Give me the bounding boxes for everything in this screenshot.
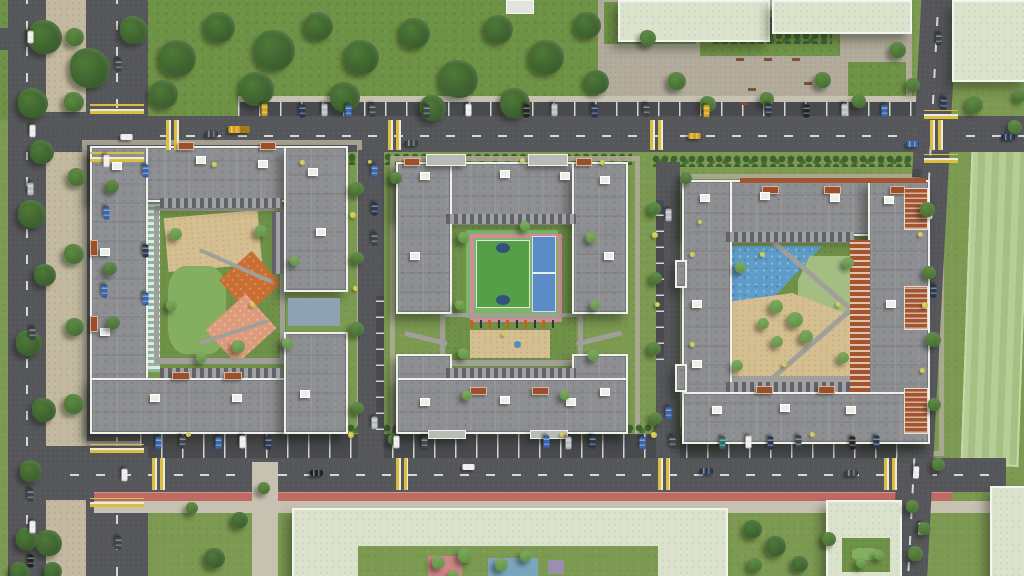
roof-bulkhead-11 <box>500 170 510 178</box>
yellow-bush-126 <box>690 252 695 257</box>
bench-2 <box>792 58 800 61</box>
car-78 <box>913 466 920 479</box>
lb-paved-terrace <box>288 298 340 326</box>
tree-59 <box>928 398 941 411</box>
mb-path-mid <box>444 313 578 317</box>
tree-5 <box>205 12 235 42</box>
mb-roof-west <box>396 162 452 314</box>
mb-fitness-strip <box>470 320 556 328</box>
tree-76 <box>588 350 599 361</box>
yellow-bush-123 <box>186 432 191 437</box>
car-66 <box>666 407 672 420</box>
tree-93 <box>822 532 836 546</box>
mb-blue-court-line <box>532 272 556 274</box>
rb-facade-north <box>726 232 854 242</box>
tree-27 <box>906 78 920 92</box>
car-34 <box>670 436 676 449</box>
crosswalk-6 <box>90 444 144 453</box>
building-north-b <box>772 0 912 34</box>
crosswalk-5 <box>90 152 144 162</box>
car-54 <box>102 285 108 298</box>
car-1 <box>300 105 306 118</box>
crosswalk-3 <box>930 120 946 150</box>
car-46 <box>30 125 36 138</box>
tree-87 <box>838 352 849 363</box>
roof-bulkhead-6 <box>150 394 160 402</box>
car-45 <box>28 31 34 44</box>
roof-bulkhead-14 <box>410 252 420 260</box>
bench-4 <box>804 82 812 85</box>
roof-bulkhead-9 <box>316 228 326 236</box>
tree-30 <box>68 168 86 186</box>
yellow-bush-131 <box>502 332 506 336</box>
car-11 <box>704 105 710 118</box>
car-25 <box>216 437 222 450</box>
mb-bump-south-a <box>428 430 466 439</box>
roof-bulkhead-4 <box>100 248 110 256</box>
crosswalk-8 <box>152 458 165 490</box>
car-53 <box>104 207 110 220</box>
tree-11 <box>485 15 513 43</box>
tree-4 <box>160 40 196 76</box>
building-corner-ne <box>952 0 1024 82</box>
car-20 <box>906 141 919 147</box>
tree-3 <box>120 16 148 44</box>
car-63 <box>372 233 378 246</box>
tree-39 <box>20 460 42 482</box>
car-2 <box>322 104 328 117</box>
entrance-canopy-3 <box>90 316 98 332</box>
car-4 <box>370 104 376 117</box>
entrance-canopy-1 <box>224 372 242 380</box>
roof-bulkhead-21 <box>760 192 770 200</box>
yellow-bush-122 <box>836 302 841 307</box>
tree-73 <box>455 300 465 310</box>
building-north-small <box>506 0 534 14</box>
roof-bulkhead-17 <box>500 396 510 404</box>
car-35 <box>720 437 726 450</box>
yellow-bush-124 <box>560 432 565 437</box>
entrance-canopy-14 <box>818 386 835 394</box>
tree-90 <box>766 536 786 556</box>
entrance-canopy-13 <box>756 386 773 394</box>
tree-20 <box>640 30 656 46</box>
tree-38 <box>32 398 56 422</box>
car-9 <box>592 105 598 118</box>
tree-75 <box>458 348 469 359</box>
tree-51 <box>648 202 661 215</box>
tree-13 <box>575 12 601 38</box>
car-31 <box>566 437 572 450</box>
tree-62 <box>1008 120 1022 134</box>
tree-71 <box>458 232 469 243</box>
roof-bulkhead-13 <box>600 176 610 184</box>
crosswalk-11 <box>884 458 897 490</box>
roof-bulkhead-16 <box>420 398 430 406</box>
roof-bulkhead-26 <box>712 406 722 414</box>
tree-36 <box>34 264 56 286</box>
tree-88 <box>732 360 743 371</box>
tree-33 <box>64 394 84 414</box>
hedge-top-east <box>652 155 926 167</box>
tree-103 <box>432 556 445 569</box>
mb-bump-north-a <box>426 154 466 166</box>
roof-bulkhead-2 <box>258 160 268 168</box>
roof-bulkhead-27 <box>780 404 790 412</box>
yellow-bush-118 <box>920 368 925 373</box>
car-7 <box>524 105 530 118</box>
car-47 <box>28 183 34 196</box>
yellow-bush-116 <box>918 232 923 237</box>
tree-97 <box>44 562 62 576</box>
yellow-bush-115 <box>651 432 657 438</box>
tree-56 <box>920 202 935 217</box>
car-12 <box>766 104 772 117</box>
roof-bulkhead-0 <box>112 162 122 170</box>
entrance-canopy-0 <box>172 372 190 380</box>
tree-52 <box>650 272 662 284</box>
car-19 <box>688 133 701 139</box>
tree-68 <box>282 338 293 349</box>
tree-21 <box>668 72 686 90</box>
yellow-bush-134 <box>368 160 372 164</box>
tree-108 <box>856 558 866 568</box>
tree-42 <box>106 180 119 193</box>
car-41 <box>310 470 323 476</box>
tree-91 <box>792 556 808 572</box>
entrance-canopy-4 <box>178 142 194 150</box>
tree-40 <box>36 530 62 556</box>
car-49 <box>28 489 34 502</box>
mb-roof-south <box>396 378 628 434</box>
tree-43 <box>104 262 117 275</box>
tree-65 <box>255 225 267 237</box>
car-40 <box>874 436 880 449</box>
tree-104 <box>458 548 473 563</box>
tree-63 <box>1014 90 1024 102</box>
tree-70 <box>290 256 300 266</box>
tree-24 <box>815 72 831 88</box>
entrance-canopy-2 <box>90 240 98 256</box>
tree-17 <box>240 72 274 106</box>
car-57 <box>104 155 110 168</box>
tree-85 <box>772 336 783 347</box>
bus-0 <box>228 126 250 133</box>
car-48 <box>30 327 36 340</box>
car-52 <box>116 59 122 72</box>
tree-45 <box>350 182 364 196</box>
rb-terra-section-b <box>904 286 928 330</box>
entrance-canopy-12 <box>890 186 905 194</box>
tree-86 <box>758 318 769 329</box>
car-26 <box>240 436 246 449</box>
yellow-bush-132 <box>782 362 787 367</box>
yellow-bush-128 <box>300 160 305 165</box>
mb-facade-south <box>446 368 576 378</box>
yellow-bush-127 <box>690 342 695 347</box>
roof-bulkhead-22 <box>830 194 840 202</box>
tree-94 <box>205 548 225 568</box>
yellow-bush-130 <box>250 302 255 307</box>
tree-31 <box>64 244 84 264</box>
mb-key-south <box>496 295 510 305</box>
lane-dash-top <box>160 135 1024 137</box>
tree-7 <box>305 12 333 40</box>
tree-80 <box>735 262 746 273</box>
car-30 <box>544 436 550 449</box>
tree-98 <box>258 482 270 494</box>
yellow-bush-125 <box>810 432 815 437</box>
tree-105 <box>495 558 508 571</box>
mb-sand-playground <box>470 330 550 358</box>
tree-34 <box>30 140 54 164</box>
tree-109 <box>874 550 884 560</box>
yellow-bush-121 <box>760 252 765 257</box>
car-59 <box>143 245 149 258</box>
car-73 <box>940 97 947 110</box>
car-56 <box>116 537 122 550</box>
tree-55 <box>680 172 692 184</box>
car-21 <box>1002 134 1015 140</box>
rb-terra-parapet <box>740 178 926 183</box>
tree-79 <box>560 390 570 400</box>
driveway-1-stalls <box>376 296 384 430</box>
bench-0 <box>736 58 744 61</box>
footpath-southwest <box>252 462 278 576</box>
tree-9 <box>400 18 430 48</box>
car-36 <box>746 436 752 449</box>
tree-12 <box>530 40 564 74</box>
roof-bulkhead-8 <box>300 390 310 398</box>
roof-bulkhead-20 <box>700 194 710 202</box>
car-75 <box>930 284 937 297</box>
mb-bump-north-b <box>528 154 568 166</box>
yellow-bush-110 <box>350 212 356 218</box>
tree-78 <box>462 390 472 400</box>
mb-key-north <box>496 243 510 253</box>
crosswalk-1 <box>388 120 401 150</box>
roof-bulkhead-12 <box>560 172 570 180</box>
tree-48 <box>352 402 364 414</box>
yellow-bush-112 <box>348 432 354 438</box>
tree-74 <box>590 300 600 310</box>
car-44 <box>845 470 858 476</box>
entrance-canopy-11 <box>824 186 841 194</box>
crosswalk-4 <box>90 104 144 114</box>
rb-bump-west-a <box>675 260 687 288</box>
car-32 <box>590 436 596 449</box>
car-50 <box>30 521 36 534</box>
tree-26 <box>890 42 906 58</box>
striped-field-east <box>960 147 1024 467</box>
tree-77 <box>520 221 530 231</box>
tree-19 <box>585 70 609 94</box>
yellow-bush-117 <box>922 302 928 308</box>
tree-47 <box>350 322 364 336</box>
roof-bulkhead-10 <box>420 172 430 180</box>
car-62 <box>372 203 378 216</box>
tree-54 <box>650 412 662 424</box>
lb-roof-east-lower <box>284 332 348 434</box>
tree-61 <box>966 96 983 113</box>
tree-44 <box>107 316 120 329</box>
car-8 <box>552 104 558 117</box>
roof-bulkhead-1 <box>196 156 206 164</box>
yellow-bush-133 <box>698 220 702 224</box>
tree-84 <box>800 330 813 343</box>
car-16 <box>120 134 133 140</box>
tree-102 <box>918 522 931 535</box>
tree-57 <box>923 266 936 279</box>
tree-53 <box>648 342 661 355</box>
rb-terra-section-c <box>904 388 928 434</box>
car-29 <box>422 437 428 450</box>
car-72 <box>935 32 942 45</box>
crosswalk-9 <box>396 458 408 490</box>
yellow-bush-111 <box>353 286 358 291</box>
car-14 <box>842 104 848 117</box>
car-18 <box>405 140 418 146</box>
car-51 <box>28 555 34 568</box>
car-0 <box>262 104 268 117</box>
crosswalk-12 <box>924 110 958 119</box>
car-5 <box>424 105 430 118</box>
tree-69 <box>196 352 207 363</box>
tree-82 <box>770 300 783 313</box>
tree-100 <box>906 500 919 513</box>
car-13 <box>804 105 810 118</box>
tree-58 <box>926 332 941 347</box>
mb-path-south <box>444 360 578 366</box>
lb-facade-north <box>160 198 282 208</box>
entrance-canopy-9 <box>576 158 592 166</box>
tree-60 <box>932 458 945 471</box>
car-58 <box>143 165 149 178</box>
roof-bulkhead-24 <box>692 300 702 308</box>
tree-72 <box>586 232 597 243</box>
roof-bulkhead-25 <box>692 360 702 368</box>
car-15 <box>882 105 888 118</box>
kg-purple-playground <box>548 560 564 574</box>
tree-25 <box>852 94 866 108</box>
tree-95 <box>232 512 248 528</box>
tree-106 <box>520 550 532 562</box>
tree-67 <box>232 340 245 353</box>
crosswalk-13 <box>924 154 958 163</box>
entrance-canopy-6 <box>470 387 487 395</box>
car-10 <box>644 104 650 117</box>
yellow-bush-119 <box>212 162 217 167</box>
car-39 <box>850 437 856 450</box>
tree-1 <box>70 48 110 88</box>
roof-bulkhead-15 <box>604 252 614 260</box>
roof-bulkhead-7 <box>232 394 242 402</box>
roof-bulkhead-19 <box>600 388 610 396</box>
car-38 <box>796 436 802 449</box>
tree-99 <box>186 502 198 514</box>
car-64 <box>372 417 378 430</box>
tree-92 <box>748 558 762 572</box>
lb-path-west <box>154 206 159 364</box>
roof-bulkhead-29 <box>886 300 896 308</box>
yellow-bush-113 <box>652 232 658 238</box>
car-61 <box>372 165 378 178</box>
entrance-canopy-8 <box>404 158 420 166</box>
roof-bulkhead-5 <box>100 328 110 336</box>
car-17 <box>205 131 218 137</box>
car-33 <box>640 437 646 450</box>
tree-66 <box>166 300 177 311</box>
mb-roof-east <box>572 162 628 314</box>
car-24 <box>180 436 186 449</box>
tree-107 <box>448 570 459 576</box>
lb-facade-east <box>272 212 284 274</box>
roof-bulkhead-28 <box>846 406 856 414</box>
entrance-canopy-5 <box>260 142 276 150</box>
tree-8 <box>345 40 379 74</box>
tree-49 <box>390 172 402 184</box>
tree-83 <box>788 312 803 327</box>
crosswalk-10 <box>658 458 670 490</box>
crosswalk-7 <box>90 498 144 507</box>
car-60 <box>143 293 149 306</box>
car-28 <box>394 436 400 449</box>
aerial-render-canvas <box>0 0 1024 576</box>
tree-32 <box>66 318 84 336</box>
car-65 <box>666 209 672 222</box>
tree-28 <box>66 28 84 46</box>
yellow-bush-114 <box>655 302 660 307</box>
tree-2 <box>18 88 48 118</box>
tree-18 <box>150 80 178 108</box>
yellow-bush-120 <box>520 158 525 163</box>
mb-facade-north <box>446 214 576 224</box>
bench-5 <box>740 102 748 105</box>
car-55 <box>122 469 128 482</box>
yellow-bush-129 <box>600 160 605 165</box>
lb-path-south <box>158 358 286 364</box>
mb-play-structure <box>514 341 521 348</box>
bench-1 <box>764 58 772 61</box>
tree-35 <box>18 200 46 228</box>
roof-bulkhead-23 <box>884 196 894 204</box>
car-23 <box>156 437 162 450</box>
car-6 <box>466 104 472 117</box>
car-43 <box>700 468 713 474</box>
roof-bulkhead-3 <box>308 168 318 176</box>
crosswalk-2 <box>650 120 663 150</box>
car-3 <box>346 105 352 118</box>
rb-bump-west-b <box>675 364 687 392</box>
tree-81 <box>843 257 854 268</box>
tree-64 <box>170 228 182 240</box>
tree-10 <box>440 60 478 98</box>
bench-3 <box>748 88 756 91</box>
tree-89 <box>744 520 762 538</box>
entrance-canopy-7 <box>532 387 549 395</box>
tree-101 <box>908 546 923 561</box>
tree-29 <box>64 92 84 112</box>
car-42 <box>462 464 475 470</box>
tree-46 <box>352 252 364 264</box>
mb-blue-court <box>532 236 556 312</box>
tree-6 <box>255 30 295 70</box>
car-27 <box>266 437 272 450</box>
car-37 <box>768 437 774 450</box>
building-corner-se <box>990 486 1024 576</box>
